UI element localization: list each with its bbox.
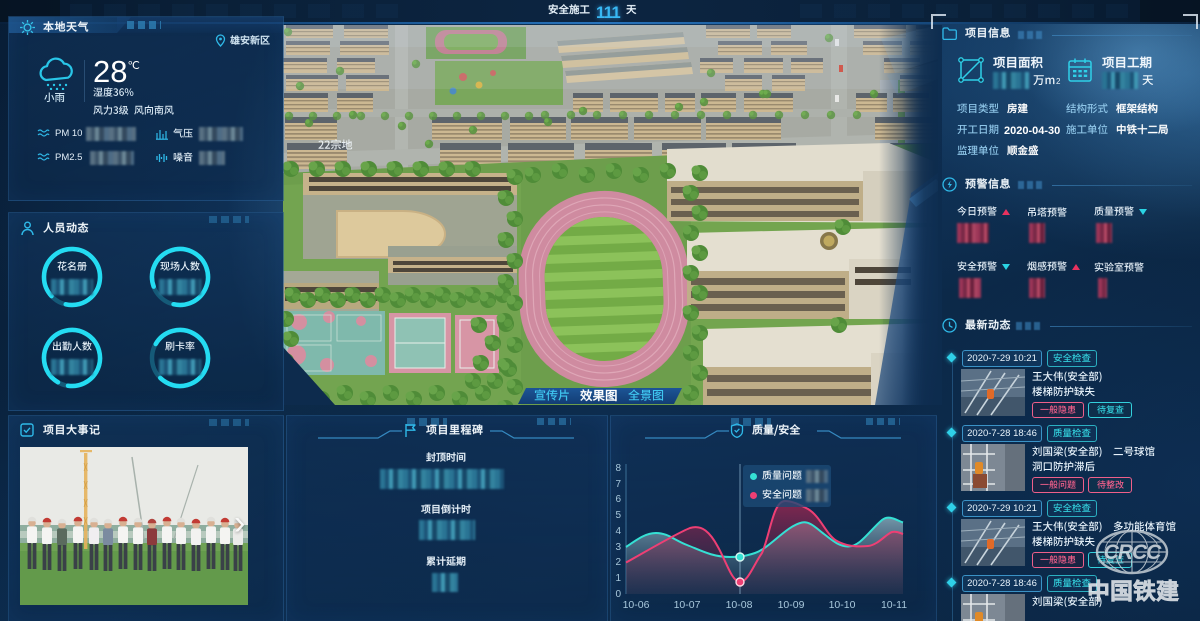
svg-text:2: 2: [615, 557, 621, 568]
svg-text:10-06: 10-06: [623, 599, 650, 610]
svg-text:10-07: 10-07: [674, 599, 701, 610]
svg-text:5: 5: [615, 510, 621, 521]
svg-text:10-11: 10-11: [881, 599, 907, 610]
svg-text:1: 1: [615, 573, 621, 584]
svg-text:10-10: 10-10: [829, 599, 856, 610]
svg-text:3: 3: [615, 542, 621, 553]
svg-text:8: 8: [615, 463, 621, 474]
svg-text:10-09: 10-09: [778, 599, 805, 610]
svg-text:6: 6: [615, 494, 621, 505]
svg-text:CRCC: CRCC: [1104, 541, 1162, 564]
svg-text:4: 4: [615, 526, 621, 537]
svg-text:0: 0: [615, 589, 621, 600]
svg-text:7: 7: [615, 479, 621, 490]
svg-text:10-08: 10-08: [726, 599, 753, 610]
